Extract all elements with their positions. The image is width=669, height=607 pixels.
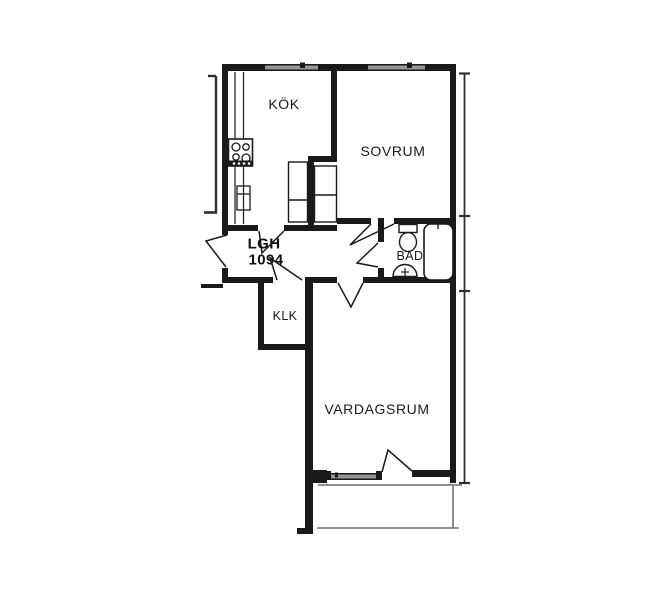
room-label-bad: BAD	[397, 249, 424, 263]
floor-plan-drawing	[0, 0, 669, 607]
wash-basin-icon	[393, 265, 417, 277]
window-sovrum	[368, 63, 425, 72]
door-bad	[357, 243, 378, 267]
door-balcony	[382, 450, 412, 472]
kitchen-fixtures	[229, 72, 337, 224]
door-entrance	[206, 235, 227, 267]
room-label-klk: KLK	[273, 309, 298, 323]
balcony-outline	[317, 485, 462, 528]
door-sovrum	[350, 224, 394, 245]
toilet-icon	[399, 225, 417, 252]
window-kok	[265, 63, 318, 72]
room-label-vardagsrum: VARDAGSRUM	[324, 401, 429, 417]
exterior-walls	[201, 64, 456, 534]
door-vardagsrum	[338, 283, 363, 307]
window-vardagsrum	[325, 471, 382, 480]
room-label-kok: KÖK	[268, 96, 299, 112]
stove-icon	[229, 139, 253, 167]
apartment-number-line2: 1094	[249, 252, 284, 269]
interior-walls	[222, 71, 455, 350]
apartment-number-line1: LGH	[248, 236, 281, 253]
floor-plan-page: KÖK SOVRUM BAD KLK VARDAGSRUM LGH 1094	[0, 0, 669, 607]
bathtub-icon	[424, 224, 453, 280]
room-label-sovrum: SOVRUM	[360, 143, 425, 159]
